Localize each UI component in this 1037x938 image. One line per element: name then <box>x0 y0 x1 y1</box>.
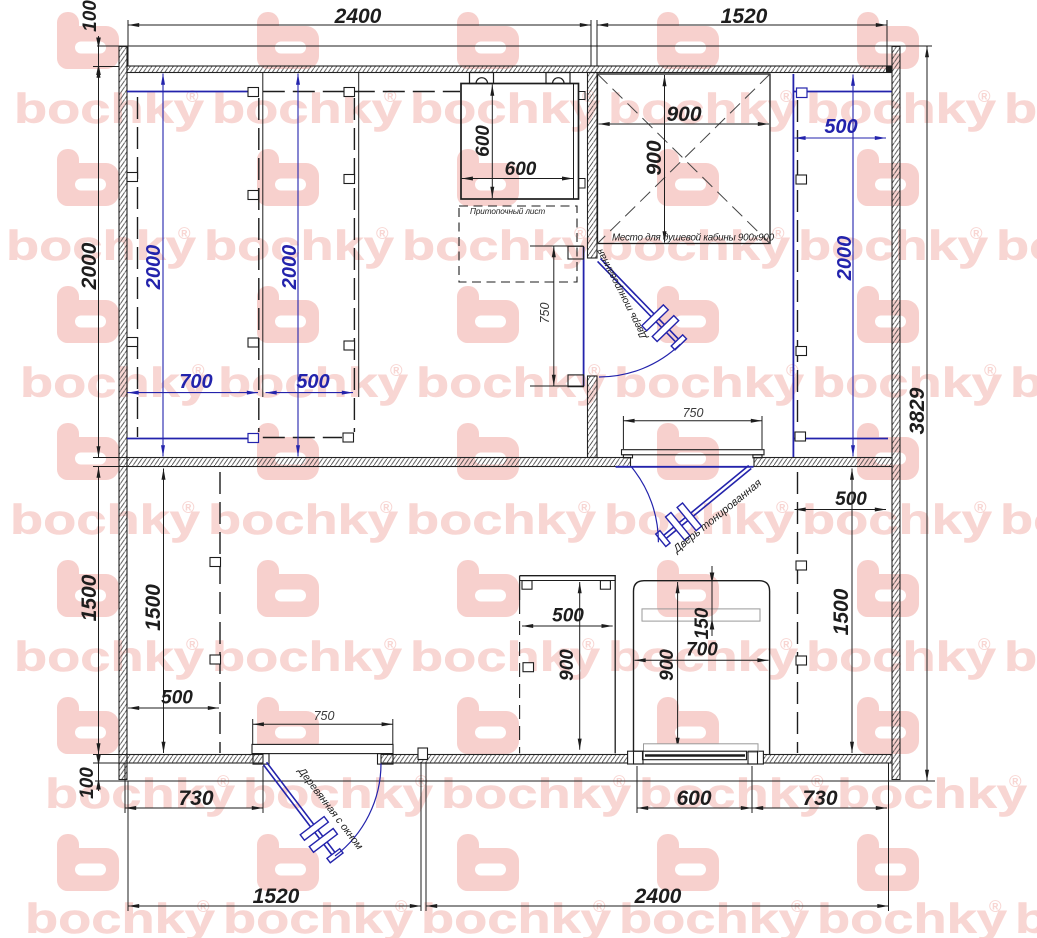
svg-text:®: ® <box>186 87 199 106</box>
svg-text:®: ® <box>178 224 191 243</box>
svg-text:bochky: bochky <box>6 222 197 269</box>
svg-text:®: ® <box>974 498 987 517</box>
svg-text:1500: 1500 <box>830 588 853 635</box>
svg-text:®: ® <box>182 498 195 517</box>
svg-text:®: ® <box>776 498 789 517</box>
svg-text:500: 500 <box>161 688 193 709</box>
svg-text:®: ® <box>390 361 403 380</box>
svg-text:®: ® <box>574 224 587 243</box>
svg-text:®: ® <box>772 224 785 243</box>
svg-text:bochky: bochky <box>1015 895 1037 938</box>
svg-text:®: ® <box>984 361 997 380</box>
svg-text:®: ® <box>970 224 983 243</box>
svg-text:®: ® <box>978 635 991 654</box>
svg-text:®: ® <box>989 897 1002 916</box>
svg-text:bochky: bochky <box>1010 359 1037 406</box>
svg-text:2000: 2000 <box>78 242 101 290</box>
svg-text:2400: 2400 <box>634 885 682 908</box>
svg-text:900: 900 <box>643 140 666 175</box>
svg-text:1500: 1500 <box>78 574 101 621</box>
svg-text:500: 500 <box>835 489 867 510</box>
svg-text:bochky: bochky <box>1004 633 1037 680</box>
svg-text:bochky: bochky <box>416 359 607 406</box>
svg-text:bochky: bochky <box>817 895 1008 938</box>
svg-text:®: ® <box>578 498 591 517</box>
svg-text:®: ® <box>380 498 393 517</box>
svg-text:600: 600 <box>473 125 494 157</box>
svg-text:1500: 1500 <box>142 584 165 631</box>
svg-text:bochky: bochky <box>410 85 601 132</box>
svg-text:bochky: bochky <box>1004 85 1037 132</box>
svg-text:bochky: bochky <box>614 359 805 406</box>
svg-text:®: ® <box>978 87 991 106</box>
svg-text:1520: 1520 <box>253 885 300 908</box>
svg-text:bochky: bochky <box>600 222 791 269</box>
svg-text:750: 750 <box>314 709 335 723</box>
svg-text:bochky: bochky <box>25 895 216 938</box>
svg-text:bochky: bochky <box>212 633 403 680</box>
svg-text:900: 900 <box>657 649 678 681</box>
svg-text:750: 750 <box>683 406 704 420</box>
svg-text:bochky: bochky <box>806 633 997 680</box>
svg-text:100: 100 <box>77 767 98 799</box>
svg-text:®: ® <box>384 87 397 106</box>
svg-text:900: 900 <box>557 649 578 681</box>
svg-text:bochky: bochky <box>14 633 205 680</box>
svg-text:®: ® <box>186 635 199 654</box>
svg-text:bochky: bochky <box>223 895 414 938</box>
svg-text:bochky: bochky <box>639 770 830 817</box>
svg-text:®: ® <box>780 87 793 106</box>
svg-text:bochky: bochky <box>1000 496 1037 543</box>
svg-text:bochky: bochky <box>10 496 201 543</box>
svg-text:700: 700 <box>179 371 212 393</box>
svg-text:Притопочный лист: Притопочный лист <box>470 207 545 216</box>
svg-text:2000: 2000 <box>834 236 856 282</box>
svg-text:2000: 2000 <box>279 245 301 291</box>
svg-text:150: 150 <box>692 607 713 639</box>
svg-text:750: 750 <box>538 303 552 324</box>
svg-text:2400: 2400 <box>334 5 382 28</box>
svg-text:bochky: bochky <box>406 496 597 543</box>
svg-text:100: 100 <box>80 0 101 32</box>
svg-text:1520: 1520 <box>721 5 768 28</box>
svg-text:730: 730 <box>802 787 837 810</box>
svg-text:®: ® <box>1009 772 1022 791</box>
svg-text:Место для душевой кабины 900х9: Место для душевой кабины 900х900 <box>612 233 775 244</box>
svg-text:®: ® <box>780 635 793 654</box>
svg-text:®: ® <box>582 635 595 654</box>
svg-text:bochky: bochky <box>441 770 632 817</box>
svg-text:2000: 2000 <box>143 245 165 291</box>
svg-text:600: 600 <box>505 159 537 180</box>
svg-text:bochky: bochky <box>837 770 1028 817</box>
svg-text:500: 500 <box>296 371 329 393</box>
svg-text:®: ® <box>376 224 389 243</box>
svg-text:730: 730 <box>178 787 213 810</box>
svg-text:600: 600 <box>676 787 711 810</box>
svg-text:bochky: bochky <box>421 895 612 938</box>
svg-text:3829: 3829 <box>906 387 929 434</box>
svg-text:700: 700 <box>686 640 718 661</box>
svg-text:®: ® <box>384 635 397 654</box>
svg-text:bochky: bochky <box>996 222 1037 269</box>
svg-text:900: 900 <box>666 103 701 126</box>
svg-text:bochky: bochky <box>208 496 399 543</box>
